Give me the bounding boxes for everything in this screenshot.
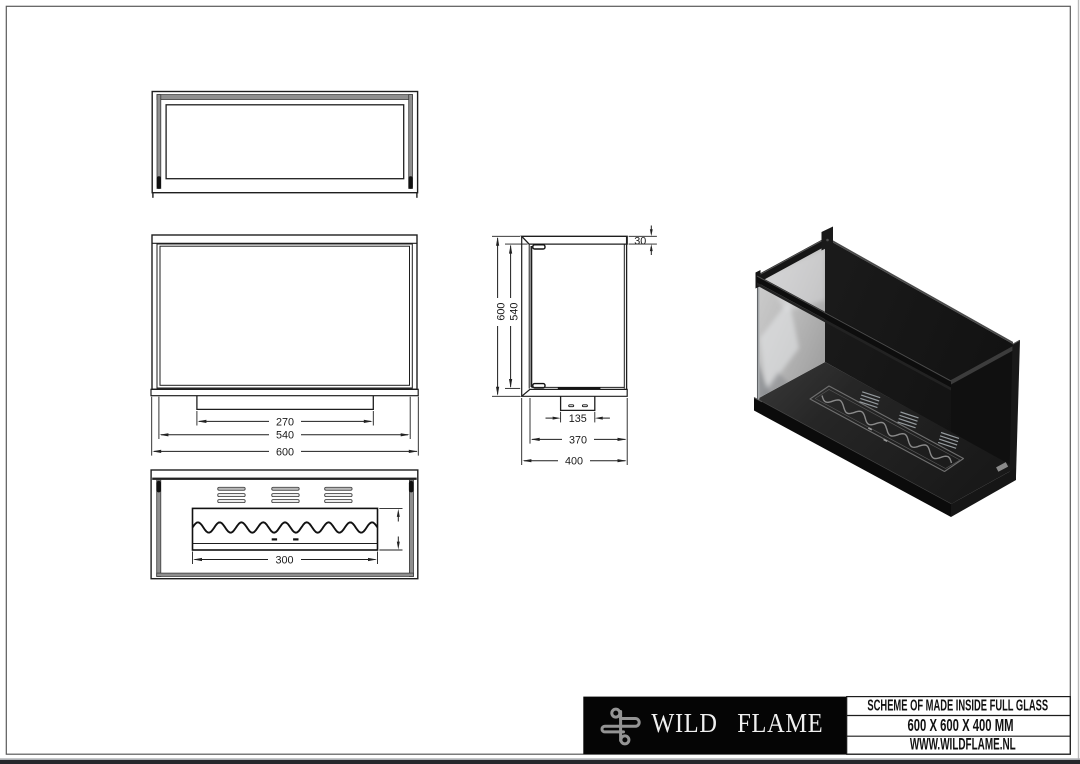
svg-text:400: 400 [565, 456, 583, 468]
svg-text:135: 135 [569, 413, 587, 425]
svg-text:600: 600 [495, 303, 507, 321]
svg-text:540: 540 [508, 303, 520, 321]
svg-text:SCHEME OF MADE INSIDE FULL GLA: SCHEME OF MADE INSIDE FULL GLASS [867, 696, 1048, 714]
svg-text:370: 370 [569, 434, 587, 446]
svg-text:600 X 600 X 400 MM: 600 X 600 X 400 MM [908, 717, 1014, 736]
svg-text:WILD FLAME: WILD FLAME [651, 708, 823, 739]
svg-text:540: 540 [276, 430, 294, 442]
svg-text:WWW.WILDFLAME.NL: WWW.WILDFLAME.NL [910, 735, 1016, 753]
svg-text:300: 300 [275, 554, 293, 566]
svg-text:270: 270 [276, 416, 294, 428]
svg-text:600: 600 [276, 446, 294, 458]
svg-text:30: 30 [634, 235, 646, 247]
